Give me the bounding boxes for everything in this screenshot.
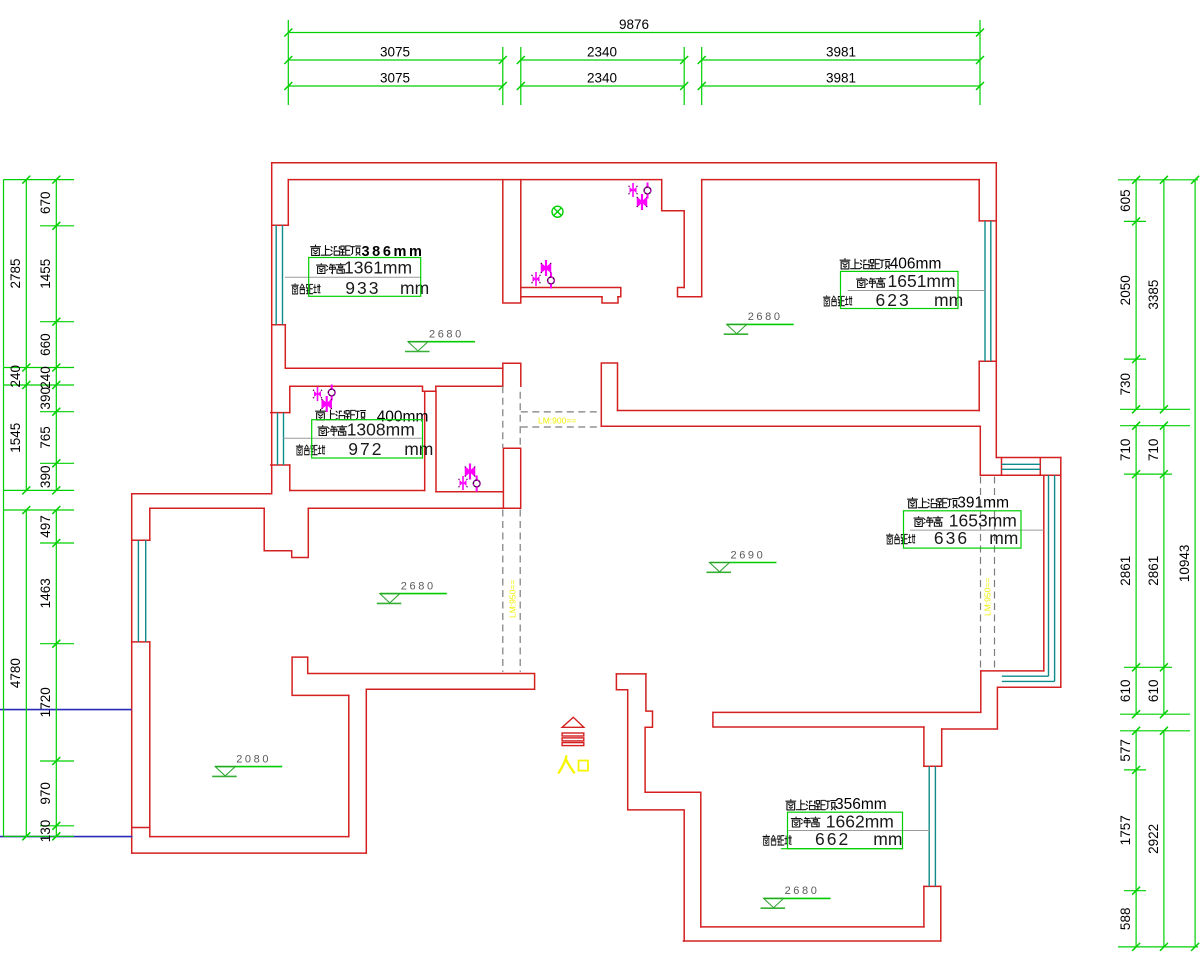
svg-text:2690: 2690 [731,549,766,561]
svg-text:mm: mm [989,528,1018,548]
svg-text:130: 130 [38,820,53,843]
svg-text:497: 497 [38,515,53,538]
svg-text:2861: 2861 [1118,556,1133,586]
svg-text:610: 610 [1146,680,1161,703]
svg-text:605: 605 [1118,189,1133,212]
svg-text:mm: mm [404,439,433,459]
svg-text:1463: 1463 [38,578,53,608]
svg-text:670: 670 [38,191,53,214]
svg-text:4780: 4780 [8,658,23,688]
svg-text:3981: 3981 [826,71,856,86]
svg-text:1455: 1455 [38,259,53,289]
svg-text:2680: 2680 [748,311,783,323]
svg-text:2785: 2785 [8,258,23,288]
svg-text:1361mm: 1361mm [344,258,412,278]
svg-text:2922: 2922 [1146,824,1161,854]
svg-text:3075: 3075 [380,45,410,60]
svg-text:2050: 2050 [1118,275,1133,305]
svg-text:765: 765 [38,426,53,449]
svg-text:1545: 1545 [8,423,23,453]
svg-text:1720: 1720 [38,687,53,717]
svg-text:623: 623 [876,290,911,310]
svg-text:406mm: 406mm [890,256,942,273]
svg-text:2080: 2080 [236,753,271,765]
svg-text:2680: 2680 [785,885,820,897]
svg-text:2861: 2861 [1146,556,1161,586]
svg-text:3981: 3981 [826,45,856,60]
svg-text:636: 636 [934,528,969,548]
svg-text:240: 240 [38,366,53,389]
svg-text:662: 662 [815,829,850,849]
svg-text:588: 588 [1118,908,1133,931]
svg-text:LM:900==: LM:900== [538,416,576,426]
svg-text:LM:950==: LM:950== [508,580,518,618]
svg-text:2680: 2680 [429,329,464,341]
svg-text:mm: mm [873,829,902,849]
svg-text:2340: 2340 [587,71,617,86]
svg-text:972: 972 [348,439,383,459]
svg-text:240: 240 [8,365,23,388]
svg-text:mm: mm [400,278,429,298]
svg-text:730: 730 [1118,373,1133,396]
svg-text:660: 660 [38,333,53,356]
svg-text:710: 710 [1118,439,1133,462]
svg-text:577: 577 [1118,739,1133,762]
svg-text:710: 710 [1146,439,1161,462]
svg-text:391mm: 391mm [957,495,1009,512]
svg-text:3385: 3385 [1146,280,1161,310]
svg-text:2680: 2680 [401,580,436,592]
svg-text:1651mm: 1651mm [888,271,956,291]
svg-text:610: 610 [1118,680,1133,703]
svg-text:mm: mm [934,290,963,310]
svg-text:356mm: 356mm [835,796,887,813]
svg-text:9876: 9876 [619,17,649,32]
svg-text:390: 390 [38,387,53,410]
svg-text:970: 970 [38,782,53,805]
svg-text:LM:950==: LM:950== [983,578,993,616]
svg-text:10943: 10943 [1177,545,1192,583]
svg-text:1308mm: 1308mm [347,420,415,440]
svg-text:2340: 2340 [587,45,617,60]
svg-text:3075: 3075 [380,71,410,86]
svg-text:933: 933 [345,278,380,298]
svg-text:1757: 1757 [1118,815,1133,845]
svg-text:390: 390 [38,466,53,489]
